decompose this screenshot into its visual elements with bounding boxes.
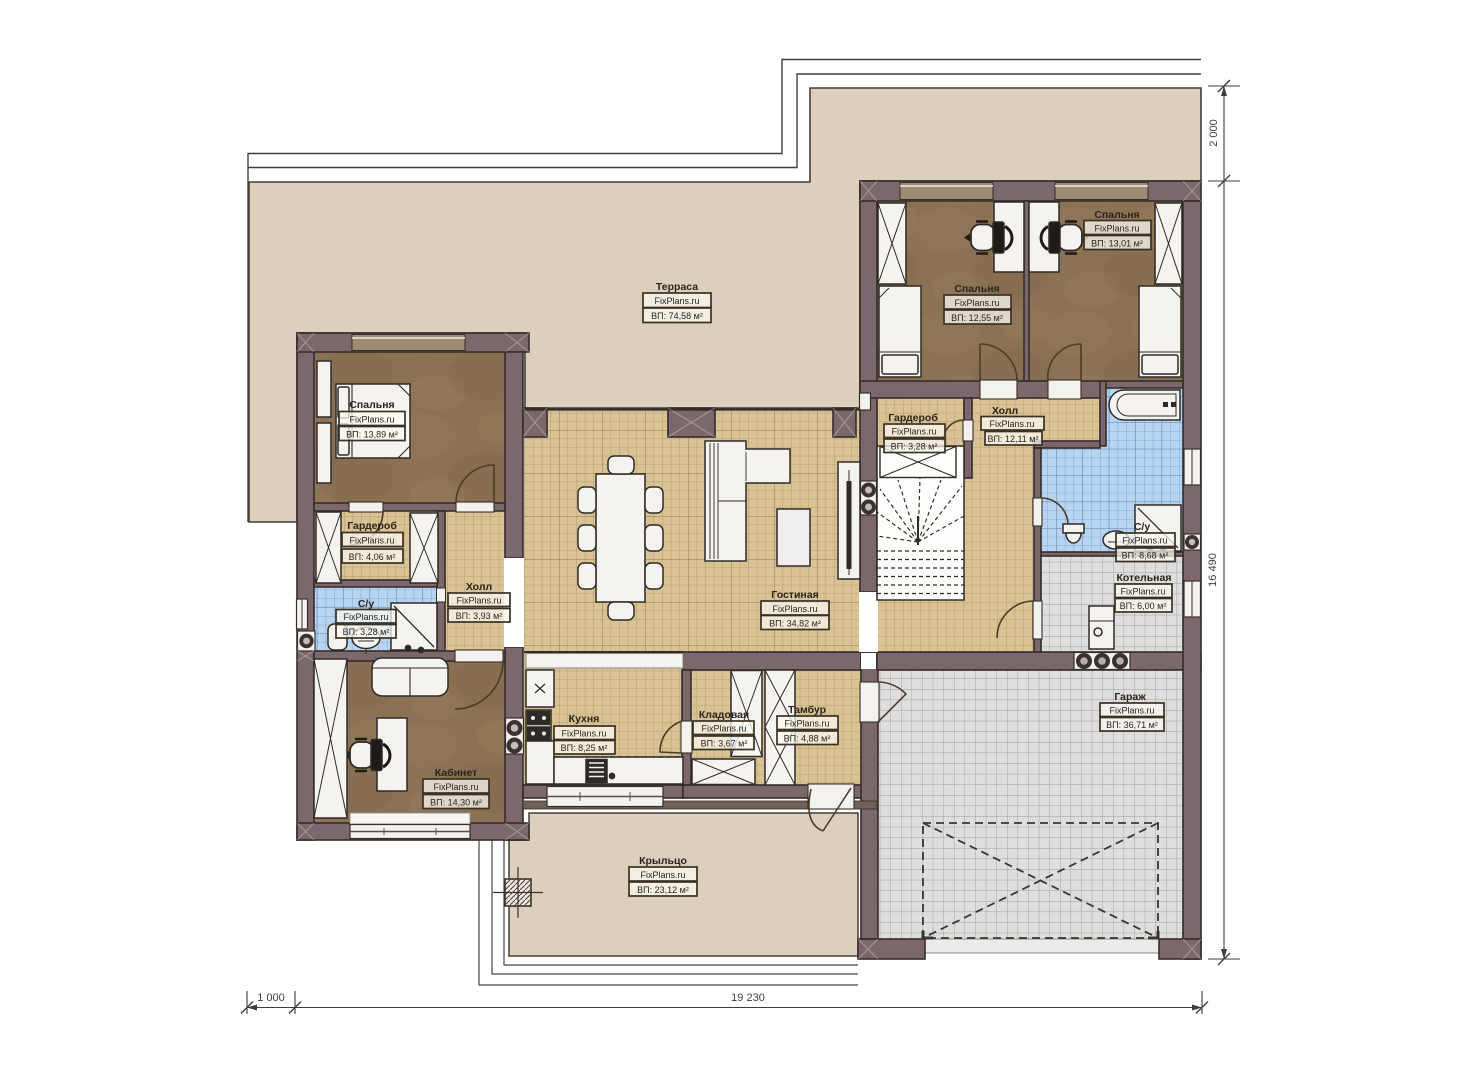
svg-text:Спальня: Спальня bbox=[349, 399, 394, 411]
svg-text:2 000: 2 000 bbox=[1208, 119, 1220, 147]
svg-text:FixPlans.ru: FixPlans.ru bbox=[1120, 587, 1165, 597]
svg-text:ВП: 3,93 м²: ВП: 3,93 м² bbox=[456, 611, 503, 621]
svg-text:ВП: 8,68 м²: ВП: 8,68 м² bbox=[1122, 551, 1169, 561]
svg-text:FixPlans.ru: FixPlans.ru bbox=[1122, 536, 1167, 546]
svg-text:ВП: 8,25 м²: ВП: 8,25 м² bbox=[561, 743, 608, 753]
svg-text:С/у: С/у bbox=[1134, 521, 1151, 533]
svg-text:FixPlans.ru: FixPlans.ru bbox=[433, 782, 478, 792]
svg-text:ВП: 13,89 м²: ВП: 13,89 м² bbox=[346, 430, 398, 440]
svg-text:Холл: Холл bbox=[992, 405, 1018, 417]
svg-text:FixPlans.ru: FixPlans.ru bbox=[561, 729, 606, 739]
svg-text:Гостиная: Гостиная bbox=[771, 589, 818, 601]
svg-text:FixPlans.ru: FixPlans.ru bbox=[343, 612, 388, 622]
svg-text:Гараж: Гараж bbox=[1114, 691, 1146, 703]
svg-text:16 490: 16 490 bbox=[1207, 553, 1219, 587]
svg-text:FixPlans.ru: FixPlans.ru bbox=[1109, 706, 1154, 716]
svg-text:FixPlans.ru: FixPlans.ru bbox=[989, 419, 1034, 429]
svg-text:FixPlans.ru: FixPlans.ru bbox=[640, 870, 685, 880]
svg-text:FixPlans.ru: FixPlans.ru bbox=[1094, 224, 1139, 234]
svg-text:Гардероб: Гардероб bbox=[888, 412, 938, 424]
svg-text:Спальня: Спальня bbox=[954, 283, 999, 295]
svg-text:Кухня: Кухня bbox=[569, 713, 600, 725]
svg-text:ВП: 3,28 м²: ВП: 3,28 м² bbox=[343, 627, 390, 637]
svg-text:FixPlans.ru: FixPlans.ru bbox=[654, 296, 699, 306]
svg-text:С/у: С/у bbox=[358, 598, 375, 610]
svg-text:FixPlans.ru: FixPlans.ru bbox=[701, 724, 746, 734]
svg-text:Котельная: Котельная bbox=[1117, 572, 1172, 584]
svg-text:FixPlans.ru: FixPlans.ru bbox=[891, 427, 936, 437]
svg-text:ВП: 14,30 м²: ВП: 14,30 м² bbox=[430, 798, 482, 808]
svg-text:ВП: 3,28 м²: ВП: 3,28 м² bbox=[891, 442, 938, 452]
svg-text:Холл: Холл bbox=[466, 581, 492, 593]
svg-text:Крыльцо: Крыльцо bbox=[639, 855, 687, 867]
svg-text:ВП: 12,55 м²: ВП: 12,55 м² bbox=[951, 313, 1003, 323]
svg-text:FixPlans.ru: FixPlans.ru bbox=[784, 719, 829, 729]
svg-text:ВП: 36,71 м²: ВП: 36,71 м² bbox=[1106, 720, 1158, 730]
svg-text:1 000: 1 000 bbox=[257, 992, 285, 1004]
svg-text:Тамбур: Тамбур bbox=[788, 704, 826, 716]
svg-text:Кабинет: Кабинет bbox=[435, 767, 478, 779]
svg-text:19 230: 19 230 bbox=[731, 992, 765, 1004]
svg-text:FixPlans.ru: FixPlans.ru bbox=[772, 604, 817, 614]
svg-text:ВП: 23,12 м²: ВП: 23,12 м² bbox=[637, 885, 689, 895]
svg-text:ВП: 4,06 м²: ВП: 4,06 м² bbox=[349, 552, 396, 562]
svg-text:Спальня: Спальня bbox=[1094, 209, 1139, 221]
svg-text:ВП: 74,58 м²: ВП: 74,58 м² bbox=[651, 311, 703, 321]
svg-text:FixPlans.ru: FixPlans.ru bbox=[456, 596, 501, 606]
svg-text:FixPlans.ru: FixPlans.ru bbox=[349, 415, 394, 425]
svg-text:ВП: 12,11 м²: ВП: 12,11 м² bbox=[987, 434, 1038, 444]
svg-text:Терраса: Терраса bbox=[656, 281, 698, 293]
svg-text:FixPlans.ru: FixPlans.ru bbox=[954, 298, 999, 308]
svg-text:Гардероб: Гардероб bbox=[347, 520, 397, 532]
svg-text:ВП: 34,82 м²: ВП: 34,82 м² bbox=[769, 619, 821, 629]
svg-text:ВП: 13,01 м²: ВП: 13,01 м² bbox=[1091, 239, 1143, 249]
svg-text:FixPlans.ru: FixPlans.ru bbox=[349, 536, 394, 546]
svg-text:ВП: 4,88 м²: ВП: 4,88 м² bbox=[784, 734, 831, 744]
svg-text:ВП: 3,67 м²: ВП: 3,67 м² bbox=[701, 739, 748, 749]
svg-text:Кладовая: Кладовая bbox=[699, 709, 749, 721]
svg-text:ВП: 6,00 м²: ВП: 6,00 м² bbox=[1120, 601, 1167, 611]
